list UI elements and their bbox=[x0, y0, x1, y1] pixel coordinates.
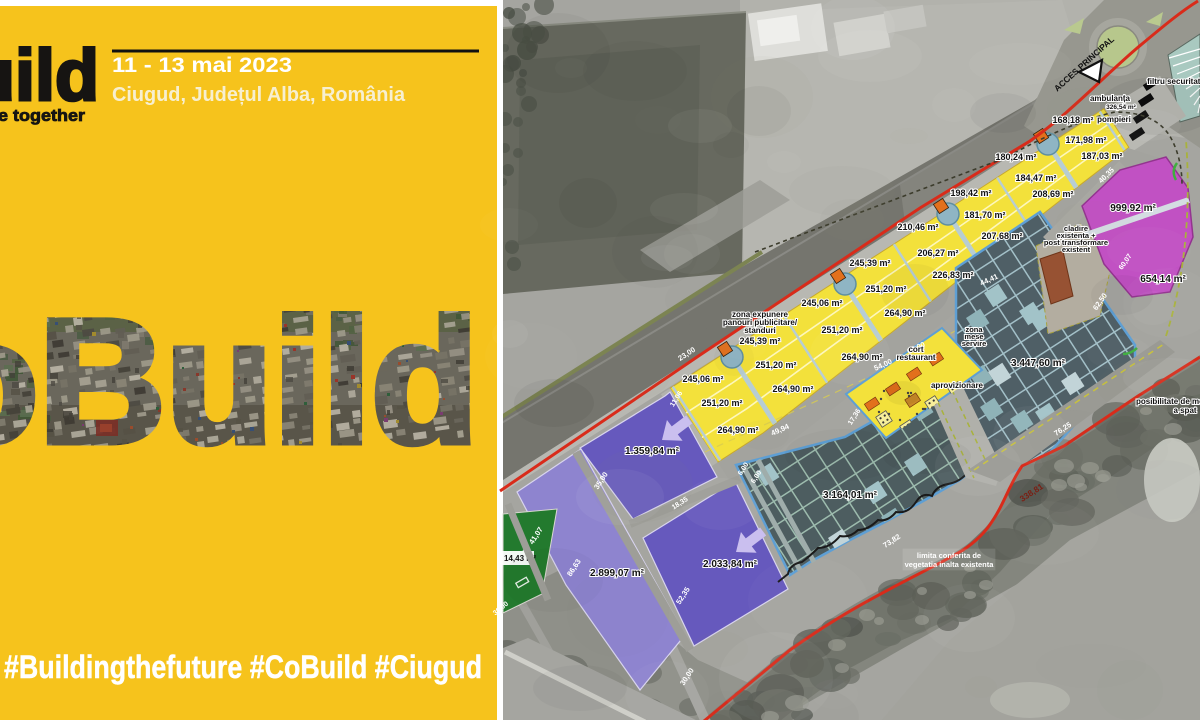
svg-text:Ciugud, Județul Alba, România: Ciugud, Județul Alba, România bbox=[112, 84, 406, 106]
svg-text:207,68 m²: 207,68 m² bbox=[981, 231, 1022, 241]
svg-text:restaurant: restaurant bbox=[896, 353, 935, 362]
svg-text:aprovizionare: aprovizionare bbox=[931, 381, 984, 390]
svg-text:210,46 m²: 210,46 m² bbox=[897, 222, 938, 232]
svg-text:264,90 m²: 264,90 m² bbox=[772, 384, 813, 394]
svg-text:vegetatia inalta existenta: vegetatia inalta existenta bbox=[905, 560, 995, 569]
svg-text:245,39 m²: 245,39 m² bbox=[849, 258, 890, 268]
svg-text:11 - 13 mai 2023: 11 - 13 mai 2023 bbox=[112, 53, 292, 77]
svg-text:posibilitate de mo: posibilitate de mo bbox=[1136, 397, 1200, 406]
svg-text:184,47 m²: 184,47 m² bbox=[1015, 173, 1056, 183]
svg-text:3.164,01 m²: 3.164,01 m² bbox=[823, 490, 878, 501]
svg-text:CoBuild: CoBuild bbox=[0, 36, 99, 116]
svg-text:180,24 m²: 180,24 m² bbox=[995, 152, 1036, 162]
svg-text:a spat: a spat bbox=[1173, 406, 1196, 415]
svg-text:filtru securitate: filtru securitate bbox=[1147, 77, 1200, 86]
svg-text:264,90 m²: 264,90 m² bbox=[841, 352, 882, 362]
svg-text:181,70 m²: 181,70 m² bbox=[964, 210, 1005, 220]
svg-text:245,39 m²: 245,39 m² bbox=[739, 336, 780, 346]
svg-text:1.359,84 m²: 1.359,84 m² bbox=[625, 446, 680, 457]
svg-text:251,20 m²: 251,20 m² bbox=[701, 398, 742, 408]
svg-text:limita conferita de: limita conferita de bbox=[917, 551, 981, 560]
svg-text:251,20 m²: 251,20 m² bbox=[821, 325, 862, 335]
svg-text:326,54 m²: 326,54 m² bbox=[1106, 104, 1136, 111]
svg-text:206,27 m²: 206,27 m² bbox=[917, 248, 958, 258]
svg-text:264,90 m²: 264,90 m² bbox=[717, 425, 758, 435]
svg-text:999,92 m²: 999,92 m² bbox=[1110, 203, 1156, 214]
svg-text:251,20 m²: 251,20 m² bbox=[755, 360, 796, 370]
svg-text:pompieri: pompieri bbox=[1097, 115, 1131, 124]
svg-text:264,90 m²: 264,90 m² bbox=[884, 308, 925, 318]
svg-text:existent: existent bbox=[1062, 245, 1091, 254]
svg-text:3.447,60 m²: 3.447,60 m² bbox=[1011, 358, 1066, 369]
svg-text:e together: e together bbox=[0, 106, 85, 125]
svg-text:#Buildingthefuture #CoBuild #C: #Buildingthefuture #CoBuild #Ciugud bbox=[4, 649, 482, 685]
svg-text:171,98 m²: 171,98 m² bbox=[1065, 135, 1106, 145]
svg-text:187,03 m²: 187,03 m² bbox=[1081, 151, 1122, 161]
svg-text:ambulanța: ambulanța bbox=[1090, 94, 1131, 103]
svg-text:251,20 m²: 251,20 m² bbox=[865, 284, 906, 294]
svg-text:servire: servire bbox=[962, 339, 987, 348]
svg-text:654,14 m²: 654,14 m² bbox=[1140, 274, 1186, 285]
svg-text:245,06 m²: 245,06 m² bbox=[801, 298, 842, 308]
svg-text:2.033,84 m²: 2.033,84 m² bbox=[703, 559, 758, 570]
svg-text:245,06 m²: 245,06 m² bbox=[682, 374, 723, 384]
svg-text:198,42 m²: 198,42 m² bbox=[950, 188, 991, 198]
svg-text:208,69 m²: 208,69 m² bbox=[1032, 189, 1073, 199]
svg-text:2.899,07 m²: 2.899,07 m² bbox=[590, 568, 645, 579]
svg-text:168,18 m²: 168,18 m² bbox=[1052, 115, 1093, 125]
svg-text:standuri: standuri bbox=[744, 326, 776, 335]
svg-text:226,83 m²: 226,83 m² bbox=[932, 270, 973, 280]
